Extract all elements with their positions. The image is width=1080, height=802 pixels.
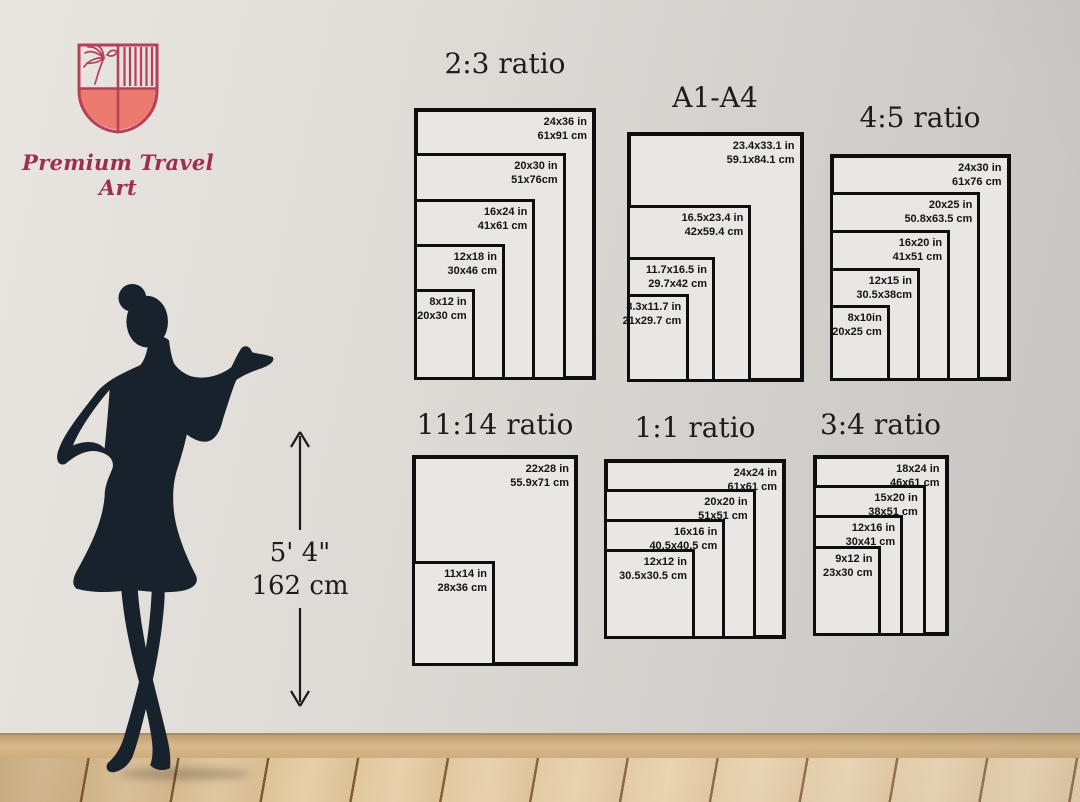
brand-logo: Premium Travel Art [20, 40, 216, 200]
chart-title: 4:5 ratio [818, 100, 1022, 136]
chart-title: A1-A4 [615, 80, 815, 116]
chart-title: 2:3 ratio [395, 46, 615, 82]
palm-bird-emblem-icon [84, 45, 117, 84]
chart-plot: 23.4x33.1 in59.1x84.1 cm16.5x23.4 in42x5… [627, 132, 804, 382]
size-label: 24x30 in61x76 cm [952, 161, 1002, 189]
size-rect: 8x10in20x25 cm [830, 305, 890, 381]
chart-title: 1:1 ratio [600, 410, 790, 446]
woman-silhouette [53, 284, 281, 779]
size-rect: 11x14 in28x36 cm [412, 561, 495, 667]
height-cm: 162 cm [251, 571, 348, 602]
size-chart-11-14: 11:14 ratio 22x28 in55.9x71 cm11x14 in28… [400, 407, 590, 666]
size-rect: 12x12 in30.5x30.5 cm [604, 549, 695, 639]
size-label: 8.3x11.7 in21x29.7 cm [623, 300, 682, 328]
chart-plot: 24x30 in61x76 cm20x25 in50.8x63.5 cm16x2… [830, 154, 1011, 381]
size-label: 11.7x16.5 in29.7x42 cm [646, 263, 707, 291]
chart-plot: 18x24 in46x61 cm15x20 in38x51 cm12x16 in… [813, 455, 949, 636]
size-label: 20x30 in51x76cm [511, 159, 558, 187]
arrow-down-icon [287, 608, 313, 708]
arrow-up-icon [287, 430, 313, 532]
size-label: 24x36 in61x91 cm [537, 115, 587, 143]
chart-plot: 22x28 in55.9x71 cm11x14 in28x36 cm [412, 455, 578, 666]
brand-name: Premium Travel Art [20, 150, 216, 200]
chart-title: 3:4 ratio [793, 407, 968, 443]
size-chart-4-5: 4:5 ratio 24x30 in61x76 cm20x25 in50.8x6… [818, 100, 1022, 381]
size-chart-2-3: 2:3 ratio 24x36 in61x91 cm20x30 in51x76c… [395, 46, 615, 380]
size-rect: 8.3x11.7 in21x29.7 cm [627, 294, 690, 382]
size-label: 16x20 in41x51 cm [893, 236, 943, 264]
size-rect: 8x12 in20x30 cm [414, 289, 475, 380]
chart-plot: 24x36 in61x91 cm20x30 in51x76cm16x24 in4… [414, 108, 596, 380]
chart-title: 11:14 ratio [400, 407, 590, 443]
shield-crest-icon [73, 40, 163, 136]
size-label: 12x12 in30.5x30.5 cm [619, 555, 687, 583]
size-label: 8x12 in20x30 cm [417, 295, 467, 323]
size-guide-scene: Premium Travel Art 5' 4" 162 cm 2:3 rati… [0, 0, 1080, 802]
size-chart-3-4: 3:4 ratio 18x24 in46x61 cm15x20 in38x51 … [793, 407, 968, 636]
chart-plot: 24x24 in61x61 cm20x20 in51x51 cm16x16 in… [604, 459, 786, 639]
size-label: 16.5x23.4 in42x59.4 cm [682, 211, 744, 239]
size-label: 16x24 in41x61 cm [478, 205, 528, 233]
size-rect: 9x12 in23x30 cm [813, 546, 881, 637]
size-chart-a1-a4: A1-A4 23.4x33.1 in59.1x84.1 cm16.5x23.4 … [615, 80, 815, 382]
size-label: 20x25 in50.8x63.5 cm [904, 198, 972, 226]
size-label: 23.4x33.1 in59.1x84.1 cm [727, 139, 795, 167]
size-label: 9x12 in23x30 cm [823, 552, 873, 580]
size-label: 12x15 in30.5x38cm [856, 274, 912, 302]
height-feet: 5' 4" [270, 538, 330, 569]
size-label: 22x28 in55.9x71 cm [510, 462, 569, 490]
height-indicator: 5' 4" 162 cm [250, 430, 350, 708]
size-label: 8x10in20x25 cm [832, 311, 882, 339]
size-label: 12x18 in30x46 cm [447, 250, 497, 278]
size-chart-1-1: 1:1 ratio 24x24 in61x61 cm20x20 in51x51 … [600, 410, 790, 639]
size-label: 11x14 in28x36 cm [437, 567, 487, 595]
